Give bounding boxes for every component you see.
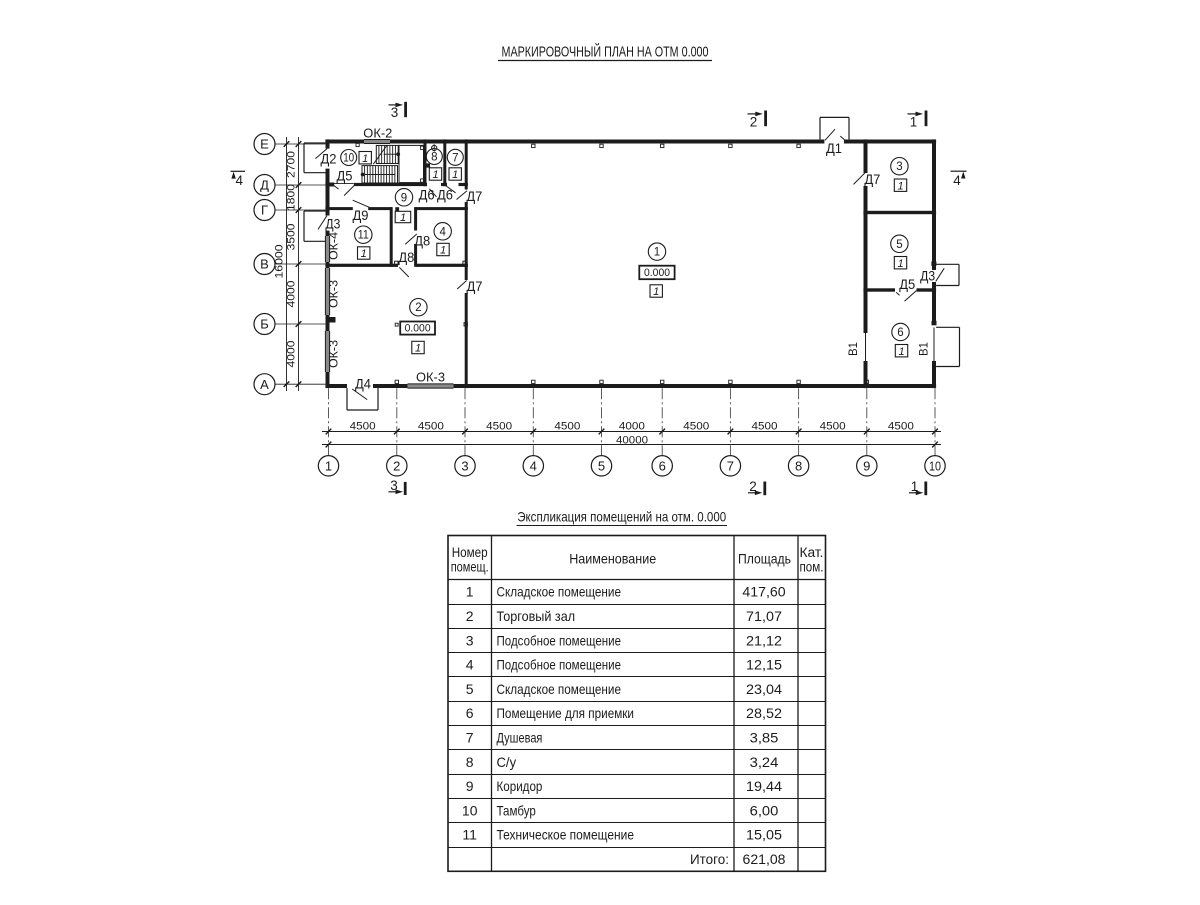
svg-text:4000: 4000 [286,341,298,368]
svg-text:Площадь: Площадь [738,551,791,567]
svg-text:Д7: Д7 [466,189,482,204]
svg-text:1: 1 [466,584,474,600]
svg-text:9: 9 [863,458,870,473]
svg-text:2: 2 [415,302,421,314]
svg-text:4500: 4500 [350,421,376,433]
svg-text:8: 8 [431,152,437,164]
svg-text:4: 4 [466,657,474,673]
svg-text:621,08: 621,08 [743,851,786,867]
svg-text:помещ.: помещ. [451,560,489,575]
svg-text:0.000: 0.000 [405,323,431,335]
svg-text:6: 6 [897,327,903,339]
svg-text:4500: 4500 [752,421,778,433]
svg-text:6: 6 [659,458,666,473]
svg-text:В: В [260,257,269,272]
svg-text:4500: 4500 [683,421,709,433]
svg-text:11: 11 [358,230,369,242]
svg-text:А: А [260,377,269,392]
svg-text:10: 10 [462,802,478,818]
svg-text:5: 5 [896,239,902,251]
svg-text:8: 8 [795,458,802,473]
svg-text:1: 1 [897,258,903,270]
svg-text:1: 1 [654,247,660,259]
svg-text:Д2: Д2 [321,152,337,167]
svg-text:3,85: 3,85 [750,730,779,746]
svg-text:1800: 1800 [286,184,298,211]
svg-text:1: 1 [897,180,903,192]
svg-text:10: 10 [343,153,354,165]
svg-text:40000: 40000 [616,435,648,447]
svg-text:9: 9 [401,192,407,204]
svg-text:Экспликация помещений на отм.: Экспликация помещений на отм. 0.000 [517,509,726,525]
svg-text:1: 1 [653,286,659,298]
svg-text:Д6: Д6 [419,187,435,202]
svg-text:Г: Г [261,203,268,218]
svg-text:417,60: 417,60 [742,584,785,600]
svg-text:1: 1 [910,114,918,129]
svg-text:ОК-3: ОК-3 [327,280,341,308]
svg-text:Техническое помещение: Техническое помещение [497,827,635,843]
svg-text:1: 1 [452,169,458,181]
svg-text:16000: 16000 [274,245,286,279]
svg-text:Подсобное помещение: Подсобное помещение [497,632,622,648]
svg-text:6: 6 [466,705,474,721]
svg-text:Складское помещение: Складское помещение [497,584,622,600]
svg-text:4000: 4000 [286,281,298,308]
svg-text:Д3: Д3 [325,216,340,231]
svg-text:7: 7 [466,730,474,746]
svg-text:Д4: Д4 [355,377,371,392]
svg-text:Б: Б [260,317,269,332]
svg-text:10: 10 [929,458,941,473]
svg-text:МАРКИРОВОЧНЫЙ ПЛАН НА ОТМ 0.00: МАРКИРОВОЧНЫЙ ПЛАН НА ОТМ 0.000 [502,43,709,61]
svg-text:4500: 4500 [888,421,914,433]
svg-text:ОК-3: ОК-3 [416,370,445,385]
svg-text:Д: Д [260,178,269,193]
svg-text:Д5: Д5 [337,169,353,184]
svg-text:23,04: 23,04 [746,681,782,697]
svg-text:71,07: 71,07 [746,608,782,624]
svg-text:3,24: 3,24 [750,754,779,770]
svg-text:Номер: Номер [452,545,488,560]
svg-text:Торговый зал: Торговый зал [497,608,576,624]
svg-text:С/у: С/у [497,754,517,770]
svg-text:Итого:: Итого: [690,851,729,867]
svg-text:Помещение для приемки: Помещение для приемки [497,705,635,721]
svg-text:19,44: 19,44 [746,778,782,794]
svg-text:21,12: 21,12 [746,632,782,648]
svg-text:4: 4 [236,173,244,188]
svg-text:3500: 3500 [286,224,298,251]
svg-text:1: 1 [361,248,367,260]
svg-text:1: 1 [400,212,406,224]
svg-text:ОК-2: ОК-2 [363,126,392,141]
svg-text:4500: 4500 [554,421,580,433]
svg-text:3: 3 [461,458,468,473]
svg-text:ОК-4: ОК-4 [327,232,341,260]
svg-text:Д3: Д3 [920,268,935,283]
svg-text:7: 7 [452,152,458,164]
svg-text:Д7: Д7 [467,279,483,294]
svg-text:В1: В1 [846,342,860,356]
svg-text:5: 5 [466,681,474,697]
svg-text:1: 1 [325,458,332,473]
svg-text:1: 1 [440,245,446,257]
svg-text:4500: 4500 [418,421,444,433]
svg-text:28,52: 28,52 [746,705,782,721]
svg-text:пом.: пом. [800,560,824,575]
svg-text:Подсобное помещение: Подсобное помещение [497,657,622,673]
svg-text:Д8: Д8 [414,234,430,249]
svg-text:Д9: Д9 [353,208,369,223]
svg-text:Складское помещение: Складское помещение [497,681,622,697]
svg-text:Наименование: Наименование [569,551,656,567]
svg-text:Душевая: Душевая [497,730,543,746]
svg-text:Коридор: Коридор [497,778,543,794]
svg-text:1: 1 [898,346,904,358]
svg-text:0.000: 0.000 [644,267,670,279]
svg-text:7: 7 [727,458,734,473]
svg-text:Е: Е [260,137,269,152]
svg-text:Д5: Д5 [899,277,915,292]
svg-text:5: 5 [598,458,605,473]
svg-text:ОК-3: ОК-3 [327,340,341,368]
svg-text:Д7: Д7 [864,172,880,187]
svg-text:6,00: 6,00 [750,802,779,818]
svg-text:3: 3 [466,632,474,648]
svg-text:Кат.: Кат. [800,545,824,560]
svg-text:4: 4 [439,226,446,238]
svg-text:4: 4 [530,458,537,473]
svg-text:Д1: Д1 [826,141,842,156]
svg-text:8: 8 [466,754,474,770]
svg-text:4500: 4500 [486,421,512,433]
svg-text:3: 3 [896,161,902,173]
svg-text:1: 1 [432,169,438,181]
svg-text:9: 9 [466,778,474,794]
svg-text:2700: 2700 [286,151,298,178]
svg-text:2: 2 [750,114,758,129]
svg-text:4: 4 [953,173,961,188]
svg-text:2: 2 [393,458,400,473]
svg-text:Д8: Д8 [398,250,414,265]
svg-text:4500: 4500 [820,421,846,433]
svg-text:11: 11 [462,827,477,843]
svg-text:В1: В1 [917,342,931,356]
svg-text:1: 1 [415,343,421,355]
svg-text:Д6: Д6 [437,187,453,202]
svg-text:1: 1 [362,153,368,165]
svg-text:2: 2 [466,608,474,624]
svg-text:12,15: 12,15 [746,657,782,673]
svg-text:4000: 4000 [619,421,645,433]
svg-text:Тамбур: Тамбур [497,802,536,818]
svg-text:15,05: 15,05 [746,827,782,843]
svg-text:3: 3 [391,105,399,120]
